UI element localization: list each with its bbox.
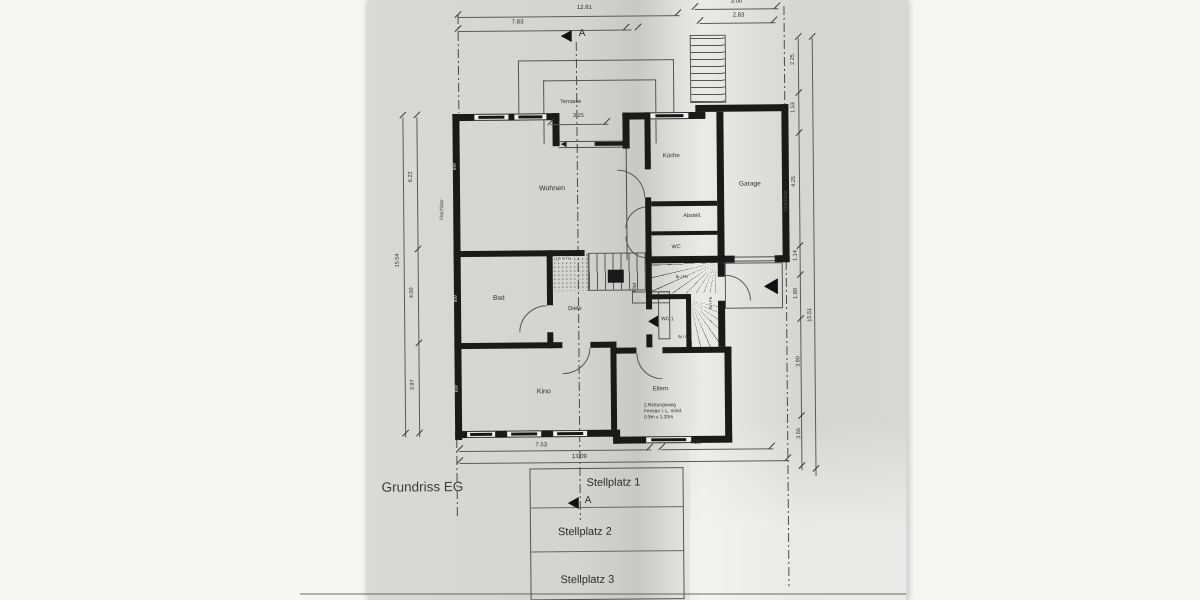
floor-mark-fb: fb / Fb — [709, 297, 714, 309]
parking-label-1: Stellplatz 1 — [587, 476, 641, 489]
room-label-kueche: Küche — [663, 153, 680, 160]
dimension-line — [812, 38, 817, 476]
dimension-label: 12.61 — [549, 5, 619, 12]
room-label-diele: Diele — [568, 306, 582, 313]
parking-label-2: Stellplatz 2 — [558, 526, 612, 539]
wall-segment — [454, 342, 562, 349]
floor-mark-fb: fb / Fb — [676, 275, 688, 280]
wall-segment — [716, 112, 724, 263]
wall-segment — [651, 201, 717, 207]
door-arc-eltern — [636, 353, 662, 379]
dimension-label: 1.14 — [793, 250, 799, 261]
dimension-line — [458, 15, 680, 18]
note-line: Fenster l. L. mind. — [644, 409, 682, 415]
dimension-line — [416, 117, 420, 437]
floor-mark-fb: fb / Fb — [678, 335, 690, 340]
boundary-line-left-top — [458, 15, 460, 113]
wall-mark-bw: BW — [454, 295, 459, 302]
room-label-garage: Garage — [739, 180, 761, 187]
window — [553, 430, 587, 437]
wall-segment — [718, 301, 725, 347]
window — [507, 430, 541, 437]
dimension-line — [459, 460, 789, 464]
dimension-tick — [635, 23, 642, 30]
dimension-label: 3.55 — [796, 428, 802, 439]
dimension-line — [700, 22, 776, 24]
floorplan-photo: 12.61 7.83 3.00 2.83 A Terrasse 3.25 — [0, 0, 1200, 600]
room-label-abstell: Abstell. — [683, 213, 701, 219]
door-arc-kueche — [617, 169, 645, 197]
dimension-label: 3.00 — [707, 0, 765, 5]
dimension-label: 15.51 — [807, 308, 813, 322]
neighbor-label-left: Nachbar — [439, 199, 445, 220]
neighbor-label-right: Nachbar — [783, 190, 789, 211]
wall-segment — [644, 112, 650, 169]
section-arrow-icon — [561, 30, 572, 42]
exterior-stair — [690, 35, 727, 103]
dimension-label: 7.53 — [511, 442, 571, 449]
section-arrow-icon — [568, 497, 579, 509]
plan-title: Grundriss EG — [382, 480, 464, 496]
section-label: A — [579, 28, 586, 39]
dimension-line — [694, 8, 778, 10]
floorplan-drawing: 12.61 7.83 3.00 2.83 A Terrasse 3.25 — [0, 0, 1200, 600]
wall-segment — [662, 347, 731, 354]
dimension-line — [458, 30, 632, 33]
wc1-door-icon — [648, 315, 658, 327]
wall-segment — [724, 347, 732, 442]
room-label-bad: Bad — [493, 295, 505, 302]
note-line: 0.9m x 1.20m — [644, 415, 673, 421]
dimension-label: 7.83 — [488, 19, 548, 26]
wall-mark-bw: BW — [453, 163, 458, 170]
door-arc-abstell — [625, 206, 647, 228]
room-label-wohnen: Wohnen — [539, 185, 565, 193]
dimension-label: 6.22 — [408, 171, 414, 182]
dimension-label: 2.83 — [709, 12, 767, 19]
sliding-door-line — [559, 147, 625, 149]
dimension-label: 2.25 — [790, 54, 796, 65]
boundary-line-right — [783, 6, 789, 586]
wall-segment — [610, 342, 617, 437]
door-arc-bad — [519, 305, 547, 332]
dimension-label: 4.25 — [791, 176, 797, 187]
stair-newel-block — [608, 270, 624, 283]
note-line: 2.Rettungsweg — [644, 403, 676, 409]
wall-segment — [646, 294, 690, 299]
dimension-label: 3.25 — [558, 113, 598, 119]
wall-segment — [645, 197, 652, 259]
window — [467, 431, 495, 438]
entry-arrow-icon — [764, 278, 778, 294]
dimension-label: 4.26 — [673, 440, 717, 447]
dimension-label: 3.90 — [795, 356, 801, 367]
garage-door-line — [735, 256, 775, 257]
wall-segment — [646, 334, 652, 347]
parking-label-3: Stellplatz 3 — [560, 574, 614, 587]
room-label-flur: Flur — [632, 282, 638, 292]
wall-segment — [646, 256, 718, 264]
wall-mark-bw: BW — [455, 385, 460, 392]
dimension-label: 15.54 — [395, 254, 401, 268]
door-arc-kino — [562, 348, 590, 374]
room-label-wc: WC — [672, 244, 681, 250]
window — [650, 112, 688, 119]
room-label-kino: Kino — [537, 388, 551, 396]
stair-label: 16 STG — [556, 256, 572, 261]
dimension-label: 3.97 — [410, 379, 416, 390]
wall-segment — [718, 256, 735, 263]
dimension-line — [402, 118, 406, 438]
wall-segment — [775, 255, 790, 262]
wall-segment — [646, 251, 653, 309]
wall-segment — [651, 231, 717, 236]
wall-segment — [695, 104, 788, 112]
dimension-label: 4.00 — [409, 287, 415, 298]
wall-segment — [718, 263, 725, 277]
dimension-label: 1.53 — [790, 102, 796, 113]
section-label: A — [585, 495, 592, 506]
dimension-label: 13.09 — [549, 454, 609, 461]
dimension-label: 1.80 — [793, 288, 799, 299]
room-label-wc1: WC 1 — [661, 317, 674, 323]
wall-segment — [781, 104, 789, 262]
window — [514, 113, 546, 120]
room-label-eltern: Eltern — [653, 386, 669, 393]
dimension-line — [459, 449, 651, 452]
wall-segment — [547, 250, 553, 305]
door-arrow-icon — [561, 141, 567, 147]
dimension-line — [661, 448, 773, 450]
window — [474, 114, 508, 121]
room-label-terrasse: Terrasse — [560, 99, 581, 105]
